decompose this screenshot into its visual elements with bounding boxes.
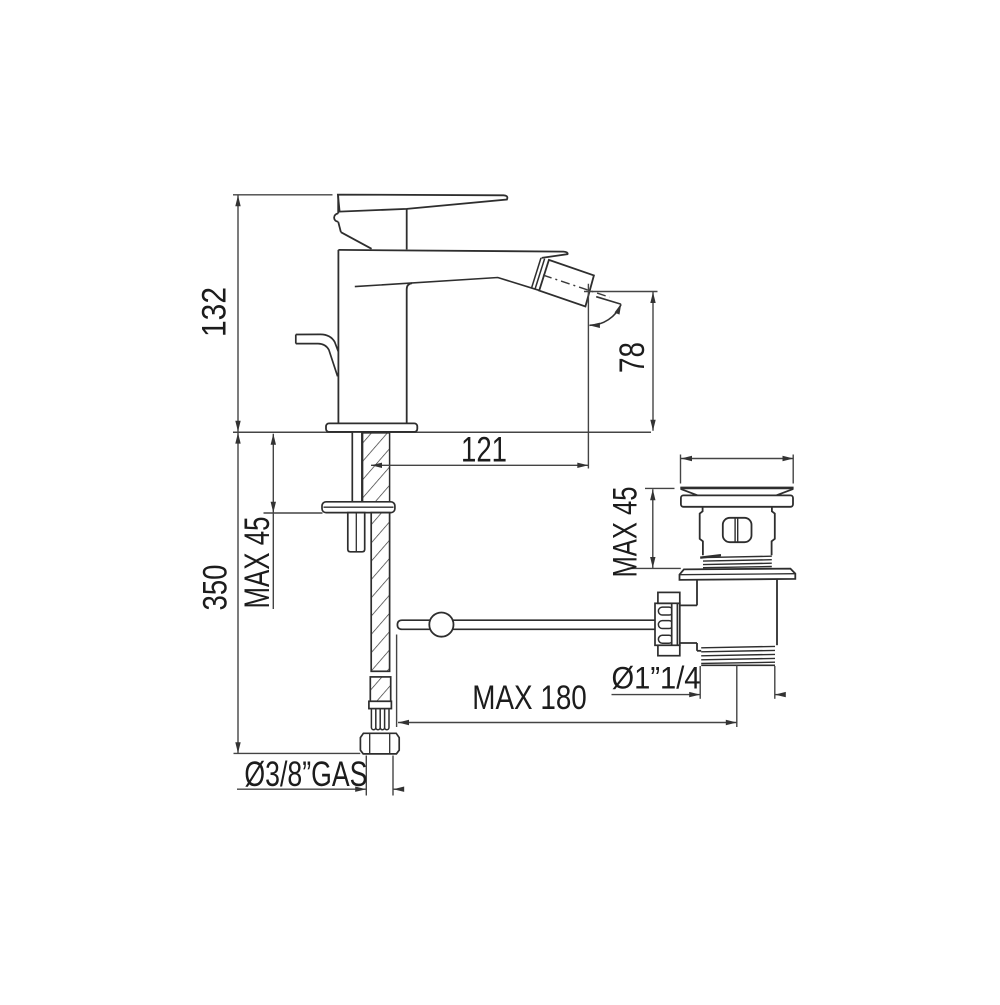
- svg-text:Ø1”1/4: Ø1”1/4: [612, 659, 701, 695]
- svg-text:MAX 45: MAX 45: [237, 517, 277, 609]
- svg-text:350: 350: [197, 565, 235, 611]
- svg-text:121: 121: [461, 430, 507, 470]
- svg-text:MAX 180: MAX 180: [472, 679, 587, 717]
- svg-text:78: 78: [612, 342, 652, 373]
- svg-text:MAX 45: MAX 45: [607, 487, 645, 578]
- svg-text:Ø3/8”GAS: Ø3/8”GAS: [244, 755, 367, 794]
- svg-text:132: 132: [196, 287, 234, 337]
